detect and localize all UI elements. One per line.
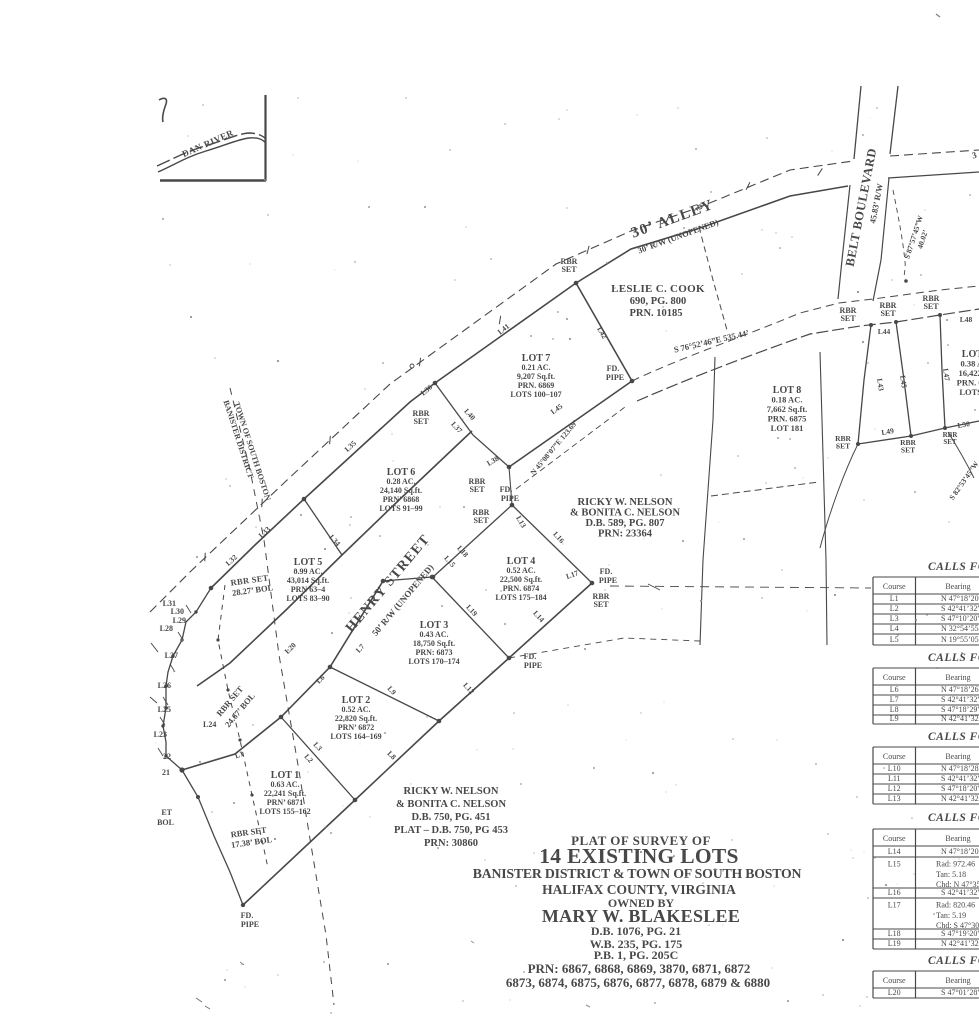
svg-text:43,014 Sq.ft.: 43,014 Sq.ft.: [287, 576, 329, 585]
svg-text:21: 21: [162, 768, 170, 777]
svg-text:N 42°41’32”: N 42°41’32”: [941, 939, 979, 948]
svg-text:Rad: 972.46: Rad: 972.46: [936, 860, 975, 869]
svg-text:L4: L4: [890, 624, 899, 633]
svg-text:0.38 AC.: 0.38 AC.: [961, 359, 979, 369]
svg-text:FD.: FD.: [241, 911, 254, 920]
svg-text:PRN. 6869: PRN. 6869: [518, 381, 554, 390]
svg-text:BANISTER DISTRICT & TOWN OF SO: BANISTER DISTRICT & TOWN OF SOUTH BOSTON: [473, 866, 802, 881]
svg-text:LOTS 170–174: LOTS 170–174: [408, 657, 459, 666]
svg-text:Course: Course: [883, 582, 906, 591]
svg-text:Bearing: Bearing: [945, 582, 970, 591]
svg-text:0.18 AC.: 0.18 AC.: [772, 395, 803, 405]
svg-text:SET: SET: [469, 485, 485, 494]
svg-text:D.B. 750, PG. 451: D.B. 750, PG. 451: [411, 812, 490, 823]
svg-text:MARY W. BLAKESLEE: MARY W. BLAKESLEE: [542, 906, 740, 926]
svg-text:0.28 AC.: 0.28 AC.: [386, 477, 415, 486]
svg-text:CALLS FOR LO: CALLS FOR LO: [928, 812, 979, 824]
svg-text:16,422 Sq: 16,422 Sq: [959, 368, 979, 378]
svg-text:SET: SET: [923, 302, 939, 311]
svg-text:L19: L19: [888, 939, 901, 948]
svg-text:PRN: 6873: PRN: 6873: [415, 648, 452, 657]
svg-text:PLAT – D.B. 750, PG 453: PLAT – D.B. 750, PG 453: [394, 825, 508, 836]
svg-text:S 47°10’20”: S 47°10’20”: [941, 614, 979, 623]
svg-text:18,750 Sq.ft.: 18,750 Sq.ft.: [413, 639, 455, 648]
svg-text:FD.: FD.: [600, 567, 613, 576]
svg-text:PRN: 30860: PRN: 30860: [424, 838, 478, 849]
svg-text:N 47°18’28”: N 47°18’28”: [941, 764, 979, 773]
svg-text:PIPE: PIPE: [606, 373, 624, 382]
svg-text:Bearing: Bearing: [945, 834, 970, 843]
svg-text:RICKY W. NELSON: RICKY W. NELSON: [577, 497, 672, 508]
svg-text:L30: L30: [171, 607, 184, 616]
svg-text:PRN 63–4: PRN 63–4: [291, 585, 325, 594]
svg-text:SET: SET: [413, 417, 429, 426]
svg-text:S 47°19’20”: S 47°19’20”: [941, 929, 979, 938]
svg-text:Bearing: Bearing: [945, 673, 970, 682]
svg-text:PRN: 23364: PRN: 23364: [598, 529, 653, 540]
svg-text:L10: L10: [888, 764, 901, 773]
svg-text:Course: Course: [883, 752, 906, 761]
svg-text:P.B. 1, PG. 205C: P.B. 1, PG. 205C: [594, 948, 679, 962]
svg-text:L13: L13: [888, 794, 901, 803]
svg-text:L14: L14: [888, 847, 901, 856]
svg-text:LOT 181: LOT 181: [771, 423, 804, 433]
svg-text:22: 22: [163, 752, 171, 761]
svg-text:SET: SET: [473, 516, 489, 525]
svg-text:L28: L28: [160, 624, 173, 633]
svg-text:L3: L3: [890, 614, 899, 623]
svg-text:0.52 AC.: 0.52 AC.: [506, 566, 535, 575]
svg-text:L7: L7: [890, 695, 899, 704]
svg-text:L20: L20: [888, 988, 901, 997]
svg-text:690, PG. 800: 690, PG. 800: [630, 296, 687, 307]
svg-text:RICKY W. NELSON: RICKY W. NELSON: [403, 786, 498, 797]
svg-text:S 42°41’32”: S 42°41’32”: [941, 888, 979, 897]
svg-text:S 42°41’32”: S 42°41’32”: [941, 604, 979, 613]
svg-text:L26: L26: [158, 681, 171, 690]
svg-text:CALLS FOR LO: CALLS FOR LO: [928, 561, 979, 573]
svg-text:ET: ET: [161, 808, 172, 817]
svg-text:PRN. 6875: PRN. 6875: [768, 414, 807, 424]
svg-text:& BONITA C. NELSON: & BONITA C. NELSON: [396, 799, 506, 810]
svg-text:FD.: FD.: [500, 485, 513, 494]
svg-text:LOTS 164–169: LOTS 164–169: [330, 732, 381, 741]
svg-text:PIPE: PIPE: [501, 494, 519, 503]
svg-text:L8: L8: [890, 705, 899, 714]
svg-text:L48: L48: [960, 315, 973, 324]
svg-text:PRN. 6876: PRN. 6876: [957, 378, 979, 388]
svg-text:9,207 Sq.ft.: 9,207 Sq.ft.: [517, 372, 555, 381]
svg-text:L47: L47: [941, 368, 952, 382]
svg-text:0.52 AC.: 0.52 AC.: [341, 705, 370, 714]
svg-text:N 47°18’20”: N 47°18’20”: [941, 847, 979, 856]
svg-text:Rad: 820.46: Rad: 820.46: [936, 901, 975, 910]
svg-text:PIPE: PIPE: [524, 661, 542, 670]
svg-text:LOTS 175–184: LOTS 175–184: [495, 593, 546, 602]
svg-text:S 47°01’28”: S 47°01’28”: [941, 988, 979, 997]
svg-text:PIPE: PIPE: [241, 920, 259, 929]
svg-text:CALLS FOR LO: CALLS FOR LO: [928, 652, 979, 664]
svg-text:D.B. 1076, PG. 21: D.B. 1076, PG. 21: [591, 924, 681, 938]
svg-text:SET: SET: [880, 309, 896, 318]
svg-text:L27: L27: [165, 651, 178, 660]
svg-text:L45: L45: [898, 375, 909, 389]
svg-text:Tan: 5.18: Tan: 5.18: [936, 870, 966, 879]
svg-text:Bearing: Bearing: [945, 976, 970, 985]
svg-text:PRN. 6874: PRN. 6874: [503, 584, 539, 593]
svg-text:N 42°41’32”: N 42°41’32”: [941, 794, 979, 803]
svg-text:SET: SET: [836, 442, 850, 451]
svg-text:LOTS 83–90: LOTS 83–90: [286, 594, 329, 603]
svg-text:S 42°41’32”: S 42°41’32”: [941, 695, 979, 704]
svg-text:L6: L6: [890, 685, 899, 694]
svg-text:L18: L18: [888, 929, 901, 938]
svg-text:22,241 Sq.ft.: 22,241 Sq.ft.: [264, 789, 306, 798]
svg-text:0.99 AC.: 0.99 AC.: [293, 567, 322, 576]
svg-text:LOTS 155–162: LOTS 155–162: [259, 807, 310, 816]
svg-text:SET: SET: [561, 265, 577, 274]
svg-text:SET: SET: [943, 438, 957, 446]
svg-text:Course: Course: [883, 673, 906, 682]
svg-text:PRN: 6867, 6868, 6869, 3870, 6: PRN: 6867, 6868, 6869, 3870, 6871, 6872: [528, 961, 751, 976]
svg-text:PRN. 10185: PRN. 10185: [629, 308, 682, 319]
svg-text:FD.: FD.: [524, 652, 537, 661]
svg-text:0.63 AC.: 0.63 AC.: [270, 780, 299, 789]
svg-text:L24: L24: [203, 720, 216, 729]
svg-text:CALLS FOR LO: CALLS FOR LO: [928, 955, 979, 967]
svg-text:LOTS 100–107: LOTS 100–107: [510, 390, 561, 399]
svg-text:SET: SET: [901, 446, 915, 455]
svg-text:& BONITA C. NELSON: & BONITA C. NELSON: [570, 508, 680, 519]
svg-text:PRN’ 6872: PRN’ 6872: [338, 723, 375, 732]
svg-text:PRN’ 6868: PRN’ 6868: [383, 495, 420, 504]
svg-text:L44: L44: [878, 327, 891, 336]
svg-text:N 19°55’05”: N 19°55’05”: [941, 635, 979, 644]
svg-text:S 47°18’29”: S 47°18’29”: [941, 705, 979, 714]
svg-text:0.43 AC.: 0.43 AC.: [419, 630, 448, 639]
svg-text:6873, 6874, 6875, 6876, 6877,: 6873, 6874, 6875, 6876, 6877, 6878, 6879…: [506, 975, 770, 990]
svg-text:L29: L29: [173, 616, 186, 625]
svg-text:L11: L11: [888, 774, 901, 783]
svg-text:N 47°18’26”: N 47°18’26”: [941, 685, 979, 694]
svg-text:L17: L17: [888, 901, 901, 910]
svg-text:N 42°41’32”: N 42°41’32”: [941, 714, 979, 723]
svg-text:Tan: 5.19: Tan: 5.19: [936, 911, 966, 920]
svg-text:14 EXISTING LOTS: 14 EXISTING LOTS: [539, 844, 739, 868]
svg-text:Course: Course: [883, 834, 906, 843]
svg-text:7,662 Sq.ft.: 7,662 Sq.ft.: [767, 404, 808, 414]
svg-text:N 32°54’55”: N 32°54’55”: [941, 624, 979, 633]
svg-text:N 47°18’20”: N 47°18’20”: [941, 594, 979, 603]
svg-text:CALLS FOR LO: CALLS FOR LO: [928, 731, 979, 743]
svg-text:Course: Course: [883, 976, 906, 985]
svg-text:22,820 Sq.ft.: 22,820 Sq.ft.: [335, 714, 377, 723]
svg-text:L1: L1: [890, 594, 899, 603]
svg-text:HALIFAX COUNTY, VIRGINIA: HALIFAX COUNTY, VIRGINIA: [542, 882, 736, 897]
svg-text:24,140 Sq.ft.: 24,140 Sq.ft.: [380, 486, 422, 495]
svg-text:LOTS 18: LOTS 18: [959, 387, 979, 397]
svg-text:L9: L9: [890, 714, 899, 723]
svg-text:L25: L25: [158, 705, 171, 714]
svg-text:SET: SET: [840, 314, 856, 323]
svg-text:FD.: FD.: [607, 364, 620, 373]
svg-text:LOTS 91–99: LOTS 91–99: [379, 504, 422, 513]
svg-text:LESLIE C. COOK: LESLIE C. COOK: [611, 283, 705, 295]
svg-text:L12: L12: [888, 784, 901, 793]
svg-text:Bearing: Bearing: [945, 752, 970, 761]
svg-text:PIPE: PIPE: [599, 576, 617, 585]
svg-text:0.21 AC.: 0.21 AC.: [521, 363, 550, 372]
svg-text:L2: L2: [890, 604, 899, 613]
svg-text:SET: SET: [593, 600, 609, 609]
svg-text:BOL: BOL: [157, 818, 174, 827]
svg-text:22,500 Sq.ft.: 22,500 Sq.ft.: [500, 575, 542, 584]
svg-text:L43: L43: [875, 378, 886, 392]
svg-text:S 47°18’20”: S 47°18’20”: [941, 784, 979, 793]
svg-text:PRN’ 6871: PRN’ 6871: [267, 798, 304, 807]
svg-text:L23: L23: [154, 730, 167, 739]
svg-text:L5: L5: [890, 635, 899, 644]
svg-text:D.B. 589, PG. 807: D.B. 589, PG. 807: [585, 518, 664, 529]
svg-text:L15: L15: [888, 860, 901, 869]
svg-text:L16: L16: [888, 888, 901, 897]
